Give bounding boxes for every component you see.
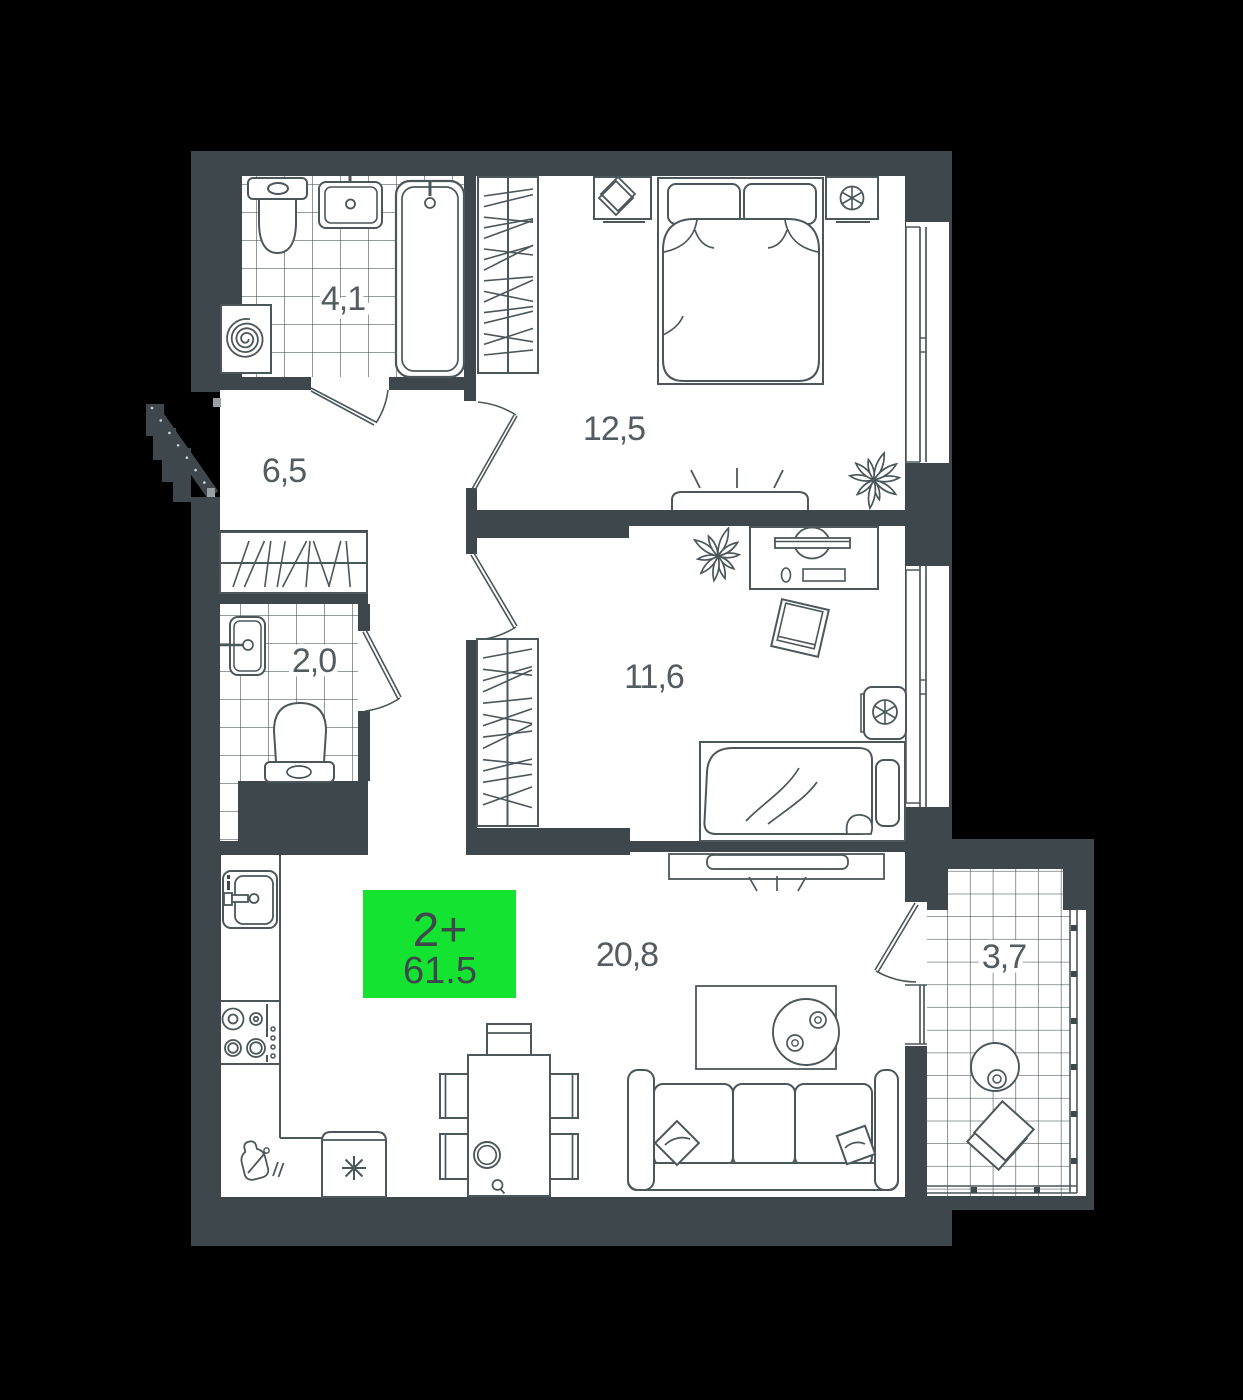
svg-text:6,5: 6,5: [262, 452, 306, 490]
svg-text:12,5: 12,5: [583, 410, 645, 448]
svg-text:4,1: 4,1: [321, 280, 365, 318]
svg-text:61.5: 61.5: [403, 950, 477, 992]
svg-text:3,7: 3,7: [982, 938, 1026, 976]
svg-text:2,0: 2,0: [292, 642, 336, 680]
svg-text:20,8: 20,8: [596, 936, 658, 974]
svg-text:11,6: 11,6: [624, 658, 684, 696]
